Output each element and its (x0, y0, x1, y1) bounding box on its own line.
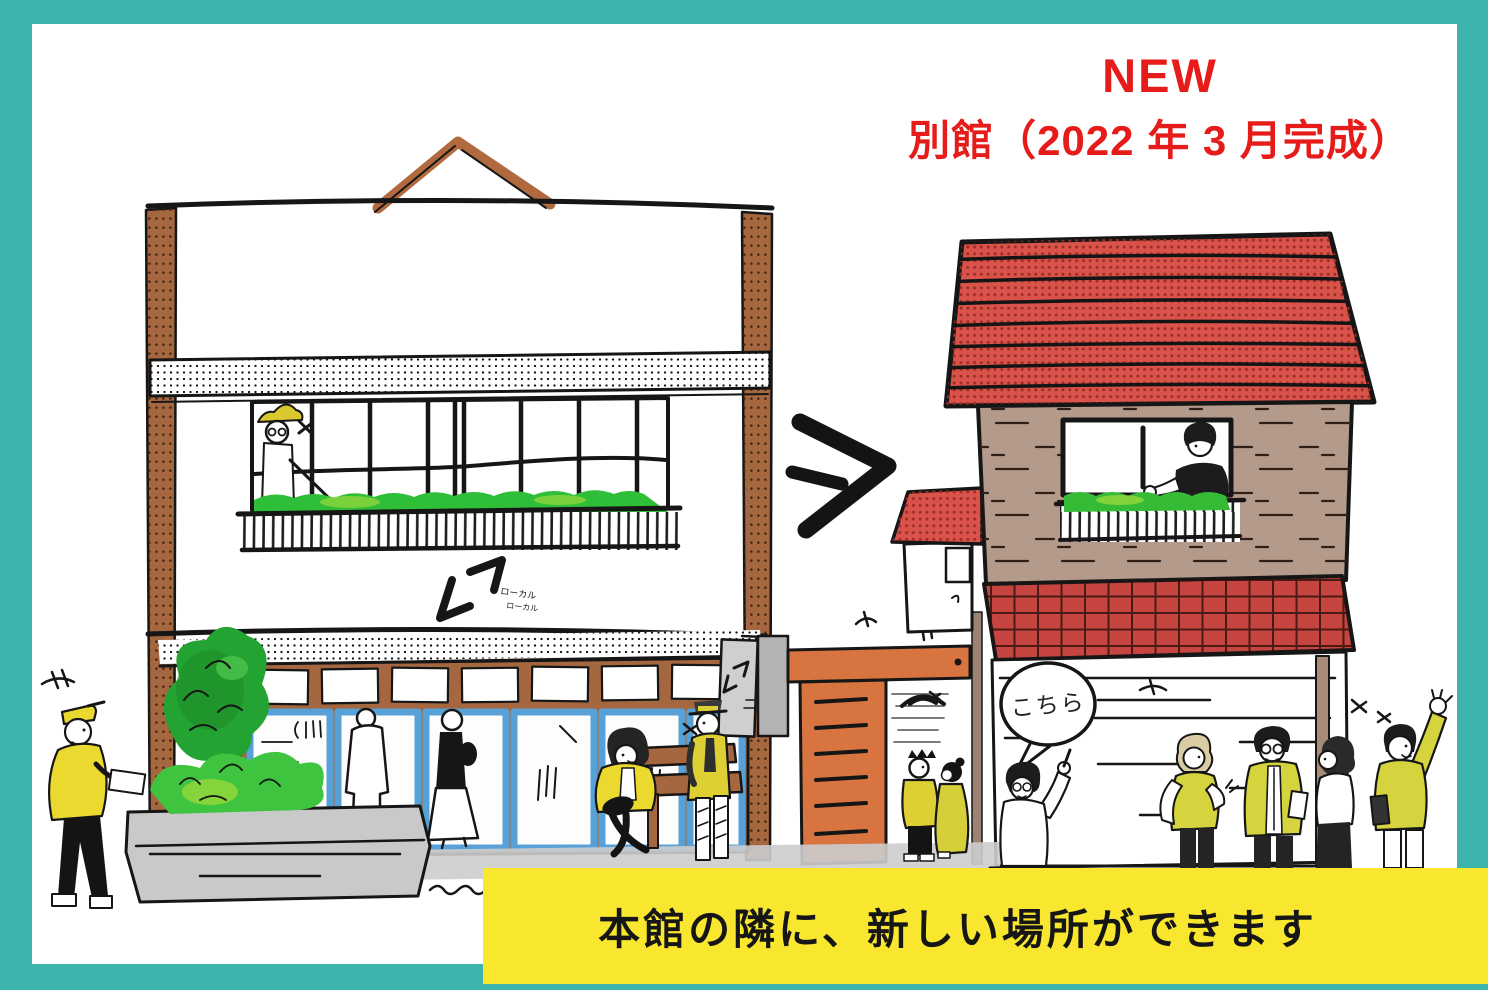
checked-awning (984, 576, 1354, 660)
scribble-mark (42, 670, 74, 688)
logo-text-2: ローカル (506, 601, 539, 613)
arrow-to-annex (792, 422, 888, 530)
scribble-x-icon (1352, 700, 1390, 722)
hanging-sign (718, 636, 788, 737)
annex-plants (1064, 492, 1230, 512)
walking-man (42, 670, 145, 908)
second-floor-window (252, 398, 668, 514)
shop-logo: ローカル ローカル (440, 560, 539, 618)
side-shed (892, 488, 982, 632)
announcement: NEW 別館（2022 年 3 月完成） (880, 50, 1440, 164)
corner-post (972, 612, 982, 864)
logo-text: ローカル (500, 586, 537, 601)
transom-windows (252, 665, 728, 705)
red-roof (940, 234, 1380, 406)
scribble-mark (856, 612, 876, 626)
illustration-poster: ローカル ローカル (0, 0, 1488, 990)
annex-window (1063, 420, 1231, 498)
visitor-woman-3 (1316, 736, 1355, 868)
sliding-door (800, 680, 886, 864)
floor-band (150, 352, 770, 402)
gate-beam (788, 646, 970, 682)
balcony-railing (238, 508, 680, 550)
announcement-badge: NEW (880, 50, 1440, 102)
bottom-banner: 本館の隣に、新しい場所ができます (483, 868, 1488, 984)
announcement-title: 別館（2022 年 3 月完成） (880, 118, 1440, 164)
banner-text: 本館の隣に、新しい場所ができます (598, 896, 1317, 957)
